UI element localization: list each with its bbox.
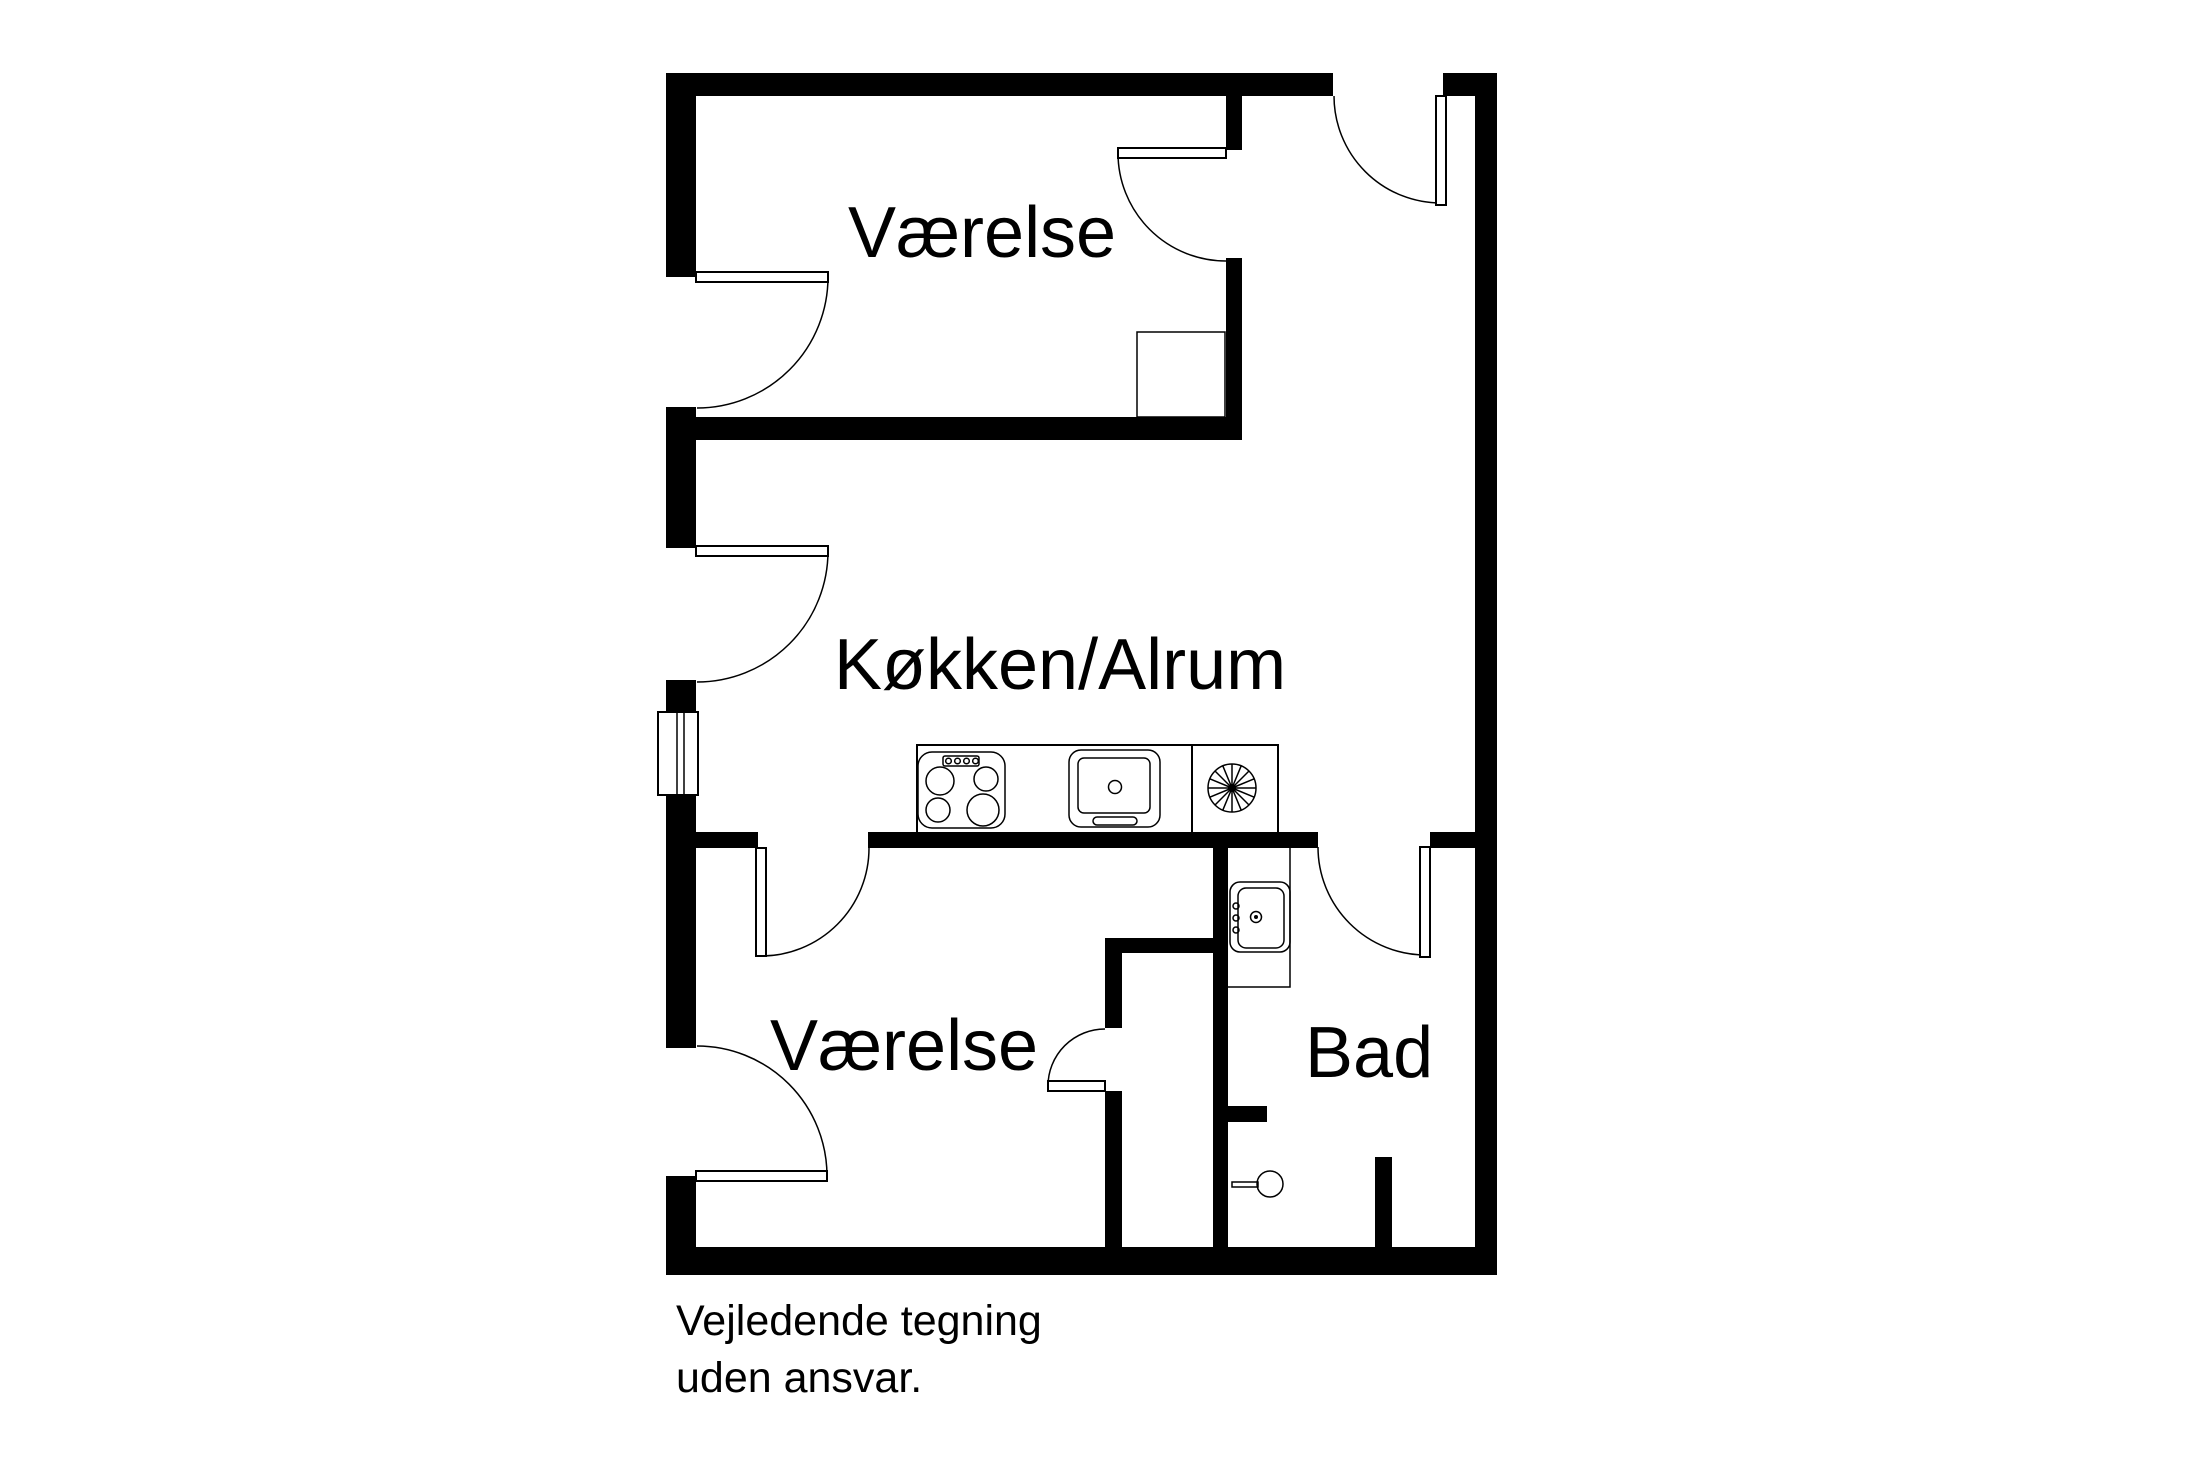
disclaimer-line-1: Vejledende tegning (676, 1293, 1042, 1350)
disclaimer-text: Vejledende tegning uden ansvar. (676, 1293, 1042, 1407)
floor-plan: Værelse Køkken/Alrum Værelse Bad Vejlede… (0, 0, 2200, 1466)
door-arc-bedroom-top-right (1118, 153, 1226, 261)
room-label-bathroom: Bad (1305, 1017, 1433, 1089)
extractor-fan-icon (1208, 764, 1256, 812)
door-arc-entrance (1334, 96, 1441, 203)
closet-square (1137, 332, 1225, 417)
door-leaf-entrance (1436, 96, 1446, 205)
room-label-bedroom-top: Værelse (848, 197, 1116, 269)
room-label-bedroom-bottom: Værelse (770, 1010, 1038, 1082)
door-leaf-bedroom-top-left (696, 272, 828, 282)
door-arc-kitchen-left (697, 551, 828, 682)
door-arc-bathroom (1318, 847, 1426, 955)
stove-icon (918, 752, 1005, 828)
window (658, 712, 698, 795)
door-leaf-bedroom-top-right (1118, 148, 1226, 158)
disclaimer-line-2: uden ansvar. (676, 1350, 1042, 1407)
door-leaf-closet (1048, 1081, 1105, 1091)
shower-valve-icon (1232, 1171, 1283, 1197)
kitchen-sink-icon (1069, 750, 1160, 827)
door-arc-kitchen-to-bedroom (761, 848, 869, 956)
door-leaf-bathroom (1420, 847, 1430, 957)
door-arc-closet (1048, 1029, 1105, 1086)
washbasin-icon (1230, 882, 1290, 952)
room-label-kitchen: Køkken/Alrum (834, 629, 1286, 701)
door-arc-bedroom-top-left (697, 277, 828, 408)
door-leaf-bedroom-bottom-left (696, 1171, 827, 1181)
door-leaf-kitchen-to-bedroom (756, 848, 766, 956)
door-leaf-kitchen-left (696, 546, 828, 556)
